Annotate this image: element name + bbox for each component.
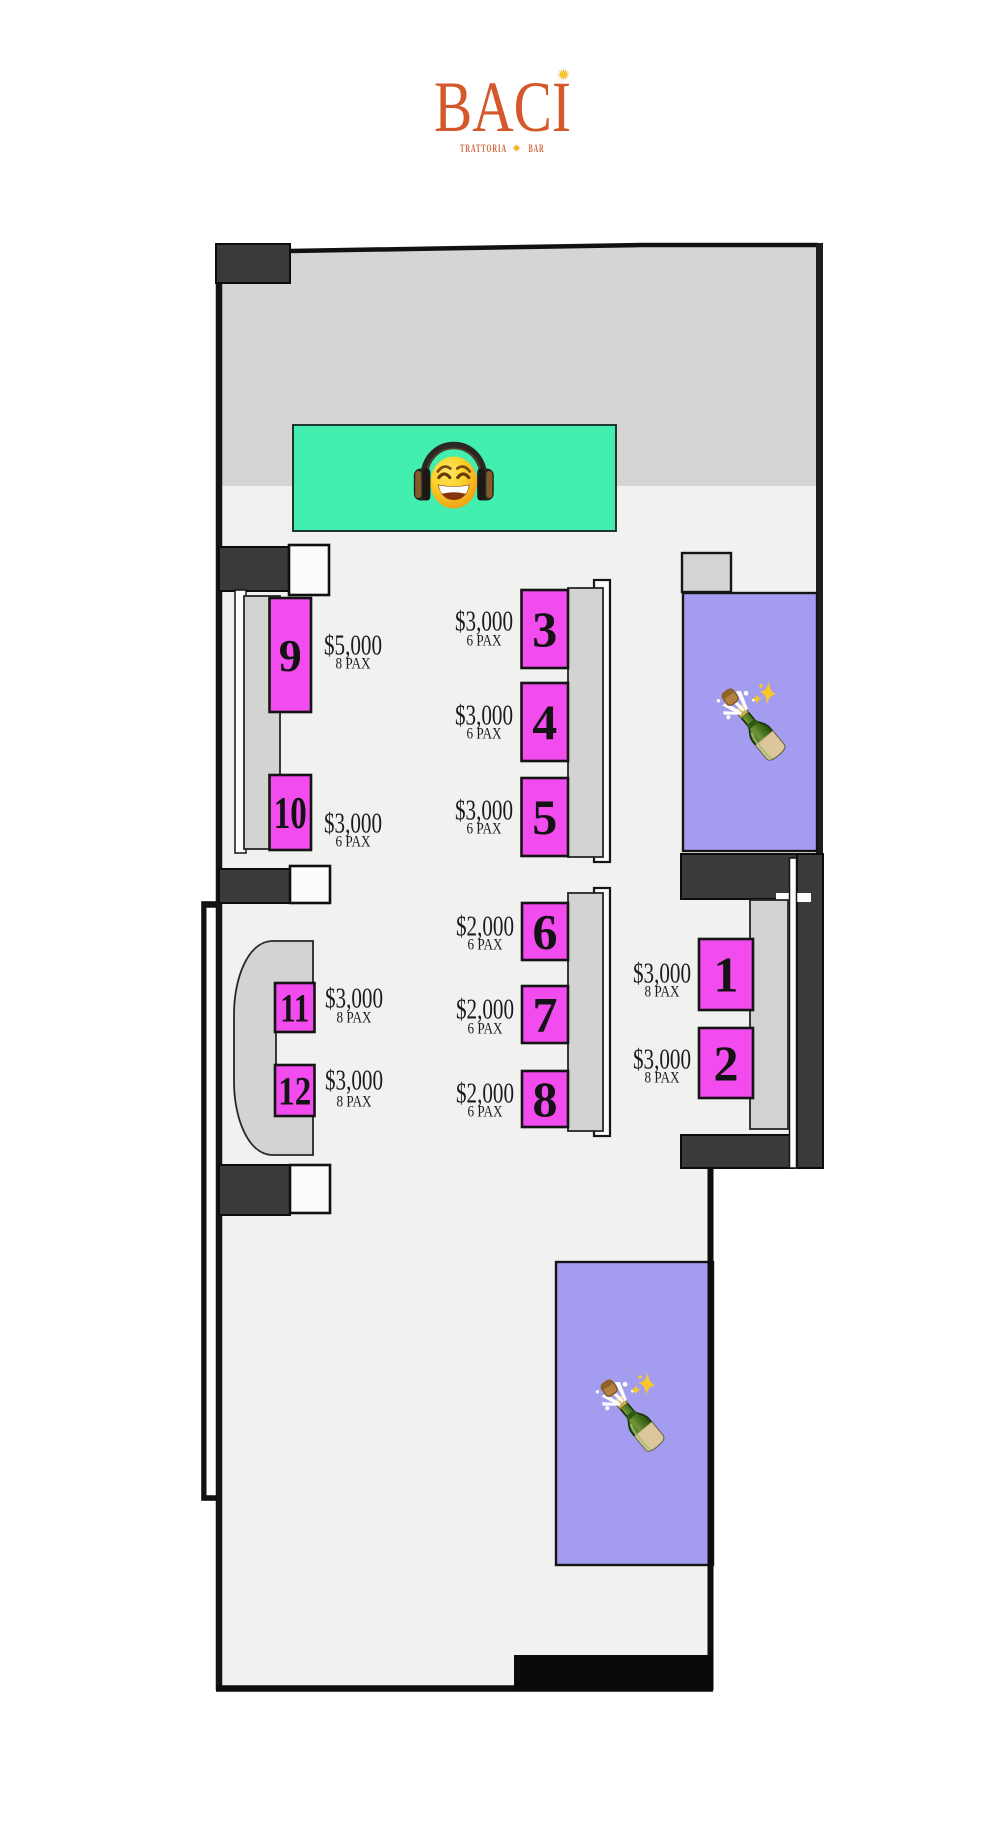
svg-text:6 PAX: 6 PAX [467, 821, 502, 838]
svg-text:12: 12 [278, 1068, 311, 1113]
svg-text:11: 11 [280, 985, 309, 1030]
svg-text:10: 10 [274, 788, 307, 838]
svg-text:6 PAX: 6 PAX [468, 1104, 503, 1121]
svg-text:9: 9 [279, 630, 302, 681]
svg-text:BAR: BAR [529, 143, 545, 155]
svg-text:1: 1 [714, 947, 739, 1003]
svg-text:3: 3 [532, 601, 557, 657]
svg-text:6 PAX: 6 PAX [468, 1021, 503, 1038]
svg-text:8 PAX: 8 PAX [337, 1010, 372, 1027]
svg-text:6: 6 [533, 904, 558, 960]
svg-text:6 PAX: 6 PAX [336, 834, 371, 851]
svg-text:4: 4 [532, 694, 557, 750]
svg-text:7: 7 [533, 987, 558, 1043]
svg-text:8 PAX: 8 PAX [337, 1094, 372, 1111]
svg-text:BACI: BACI [434, 67, 571, 147]
svg-text:$3,000: $3,000 [325, 1066, 383, 1097]
svg-text:TRATTORIA: TRATTORIA [460, 143, 507, 155]
svg-text:8 PAX: 8 PAX [336, 656, 371, 673]
svg-text:6 PAX: 6 PAX [468, 937, 503, 954]
svg-text:8 PAX: 8 PAX [645, 984, 680, 1001]
svg-text:5: 5 [532, 789, 557, 845]
svg-text:6 PAX: 6 PAX [467, 633, 502, 650]
svg-text:8: 8 [533, 1071, 558, 1127]
svg-text:6 PAX: 6 PAX [467, 726, 502, 743]
svg-text:8 PAX: 8 PAX [645, 1070, 680, 1087]
svg-text:2: 2 [714, 1035, 739, 1091]
